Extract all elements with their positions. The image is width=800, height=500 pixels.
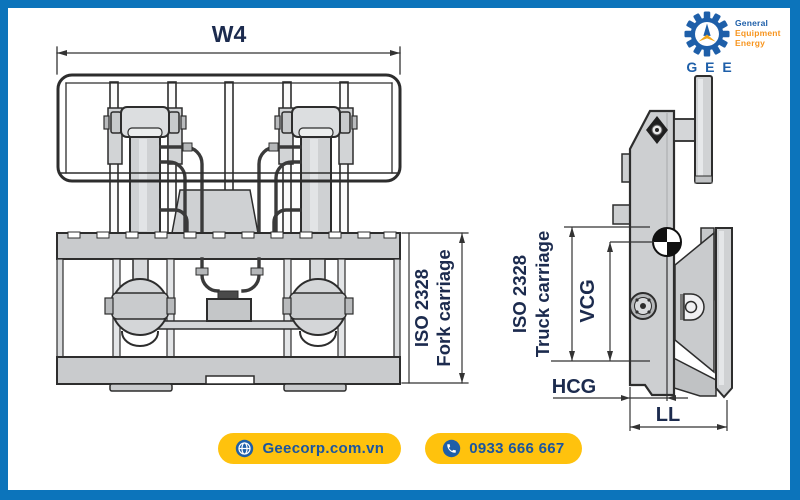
- contact-bar: Geecorp.com.vn 0933 666 667: [0, 433, 800, 464]
- brand-name-line2: Equipment: [735, 28, 781, 38]
- brand-abbrev: G E E: [684, 59, 736, 75]
- technical-drawing: W4: [0, 0, 800, 500]
- front-standard-label-line2: Fork carriage: [433, 249, 454, 366]
- website-button[interactable]: Geecorp.com.vn: [218, 433, 401, 464]
- phone-icon: [442, 439, 461, 458]
- brand-name-line1: General: [735, 18, 781, 28]
- fork-hook-detail: [680, 294, 704, 320]
- globe-icon: [235, 439, 254, 458]
- side-standard-label-line1: ISO 2328: [509, 255, 530, 333]
- gear-logo-icon: [684, 11, 730, 57]
- page: W4: [0, 0, 800, 500]
- hcg-dimension-label: HCG: [552, 376, 596, 398]
- vcg-dimension-label: VCG: [577, 279, 599, 322]
- side-standard-label-line2: Truck carriage: [532, 231, 553, 358]
- phone-label: 0933 666 667: [469, 440, 564, 457]
- phone-button[interactable]: 0933 666 667: [425, 433, 581, 464]
- side-view-drawing: ISO 2328 Truck carriage VCG HCG LL: [509, 76, 732, 431]
- website-label: Geecorp.com.vn: [262, 440, 384, 457]
- brand-logo: General Equipment Energy G E E: [684, 11, 794, 75]
- roller-detail: [630, 293, 656, 319]
- ll-dimension-label: LL: [656, 404, 680, 426]
- front-view-drawing: W4: [57, 21, 468, 391]
- w4-dimension-label: W4: [212, 21, 247, 47]
- center-of-gravity-symbol: [653, 228, 681, 256]
- backrest-blade: [695, 76, 712, 183]
- brand-name-line3: Energy: [735, 38, 781, 48]
- front-standard-label-line1: ISO 2328: [411, 269, 432, 347]
